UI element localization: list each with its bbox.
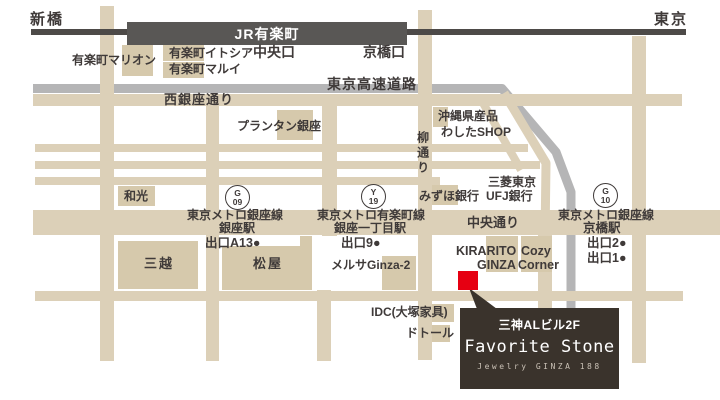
shop-location-marker [458,271,478,290]
badge-ginza-station-g09: G09 [225,185,250,210]
shop-info-box: 三神ALビル2F Favorite Stone Jewelry GINZA 18… [460,308,619,389]
ginza-access-map: JR有楽町 新橋東京中央口京橋口有楽町マリオン有楽町イトシア有楽町マルイ東京高速… [0,0,720,400]
badge-kyobashi-station-g10: G10 [593,183,618,208]
shop-subtitle-label: Jewelry GINZA 188 [460,362,619,371]
badge-ginza-itchome-station-y19: Y19 [361,184,386,209]
shop-name-label: Favorite Stone [460,337,619,357]
shop-building-label: 三神ALビル2F [460,316,619,333]
